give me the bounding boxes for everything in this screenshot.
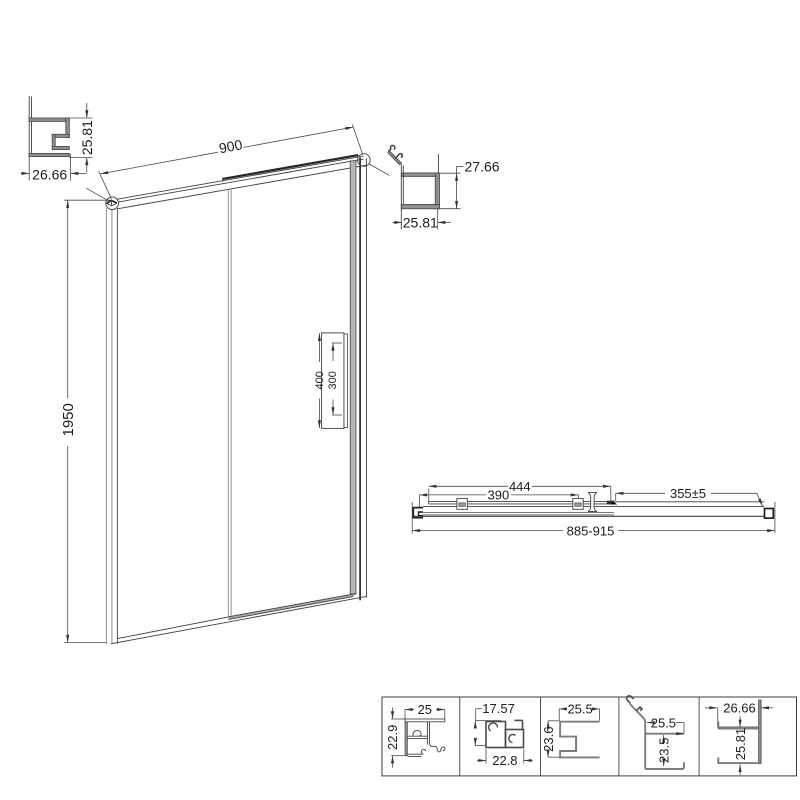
svg-text:23.5: 23.5 [656, 738, 671, 763]
svg-text:25.5: 25.5 [567, 701, 592, 716]
svg-text:25.5: 25.5 [651, 715, 676, 730]
svg-text:390: 390 [488, 488, 510, 503]
svg-text:400: 400 [314, 371, 326, 389]
svg-text:25.81: 25.81 [403, 214, 438, 230]
svg-text:23.6: 23.6 [541, 727, 556, 752]
svg-text:26.66: 26.66 [723, 700, 756, 715]
svg-text:17.57: 17.57 [482, 701, 515, 716]
svg-text:25.81: 25.81 [79, 120, 95, 155]
svg-text:22.8: 22.8 [492, 753, 517, 768]
svg-text:1950: 1950 [60, 403, 77, 436]
svg-text:22.9: 22.9 [385, 725, 400, 750]
svg-text:25.81: 25.81 [733, 728, 748, 761]
svg-text:27.66: 27.66 [465, 158, 500, 174]
svg-text:25: 25 [418, 702, 432, 717]
svg-text:885-915: 885-915 [567, 523, 615, 538]
svg-text:444: 444 [509, 479, 531, 494]
svg-text:300: 300 [327, 371, 339, 389]
svg-text:355±5: 355±5 [670, 486, 706, 501]
svg-text:26.66: 26.66 [32, 166, 67, 182]
